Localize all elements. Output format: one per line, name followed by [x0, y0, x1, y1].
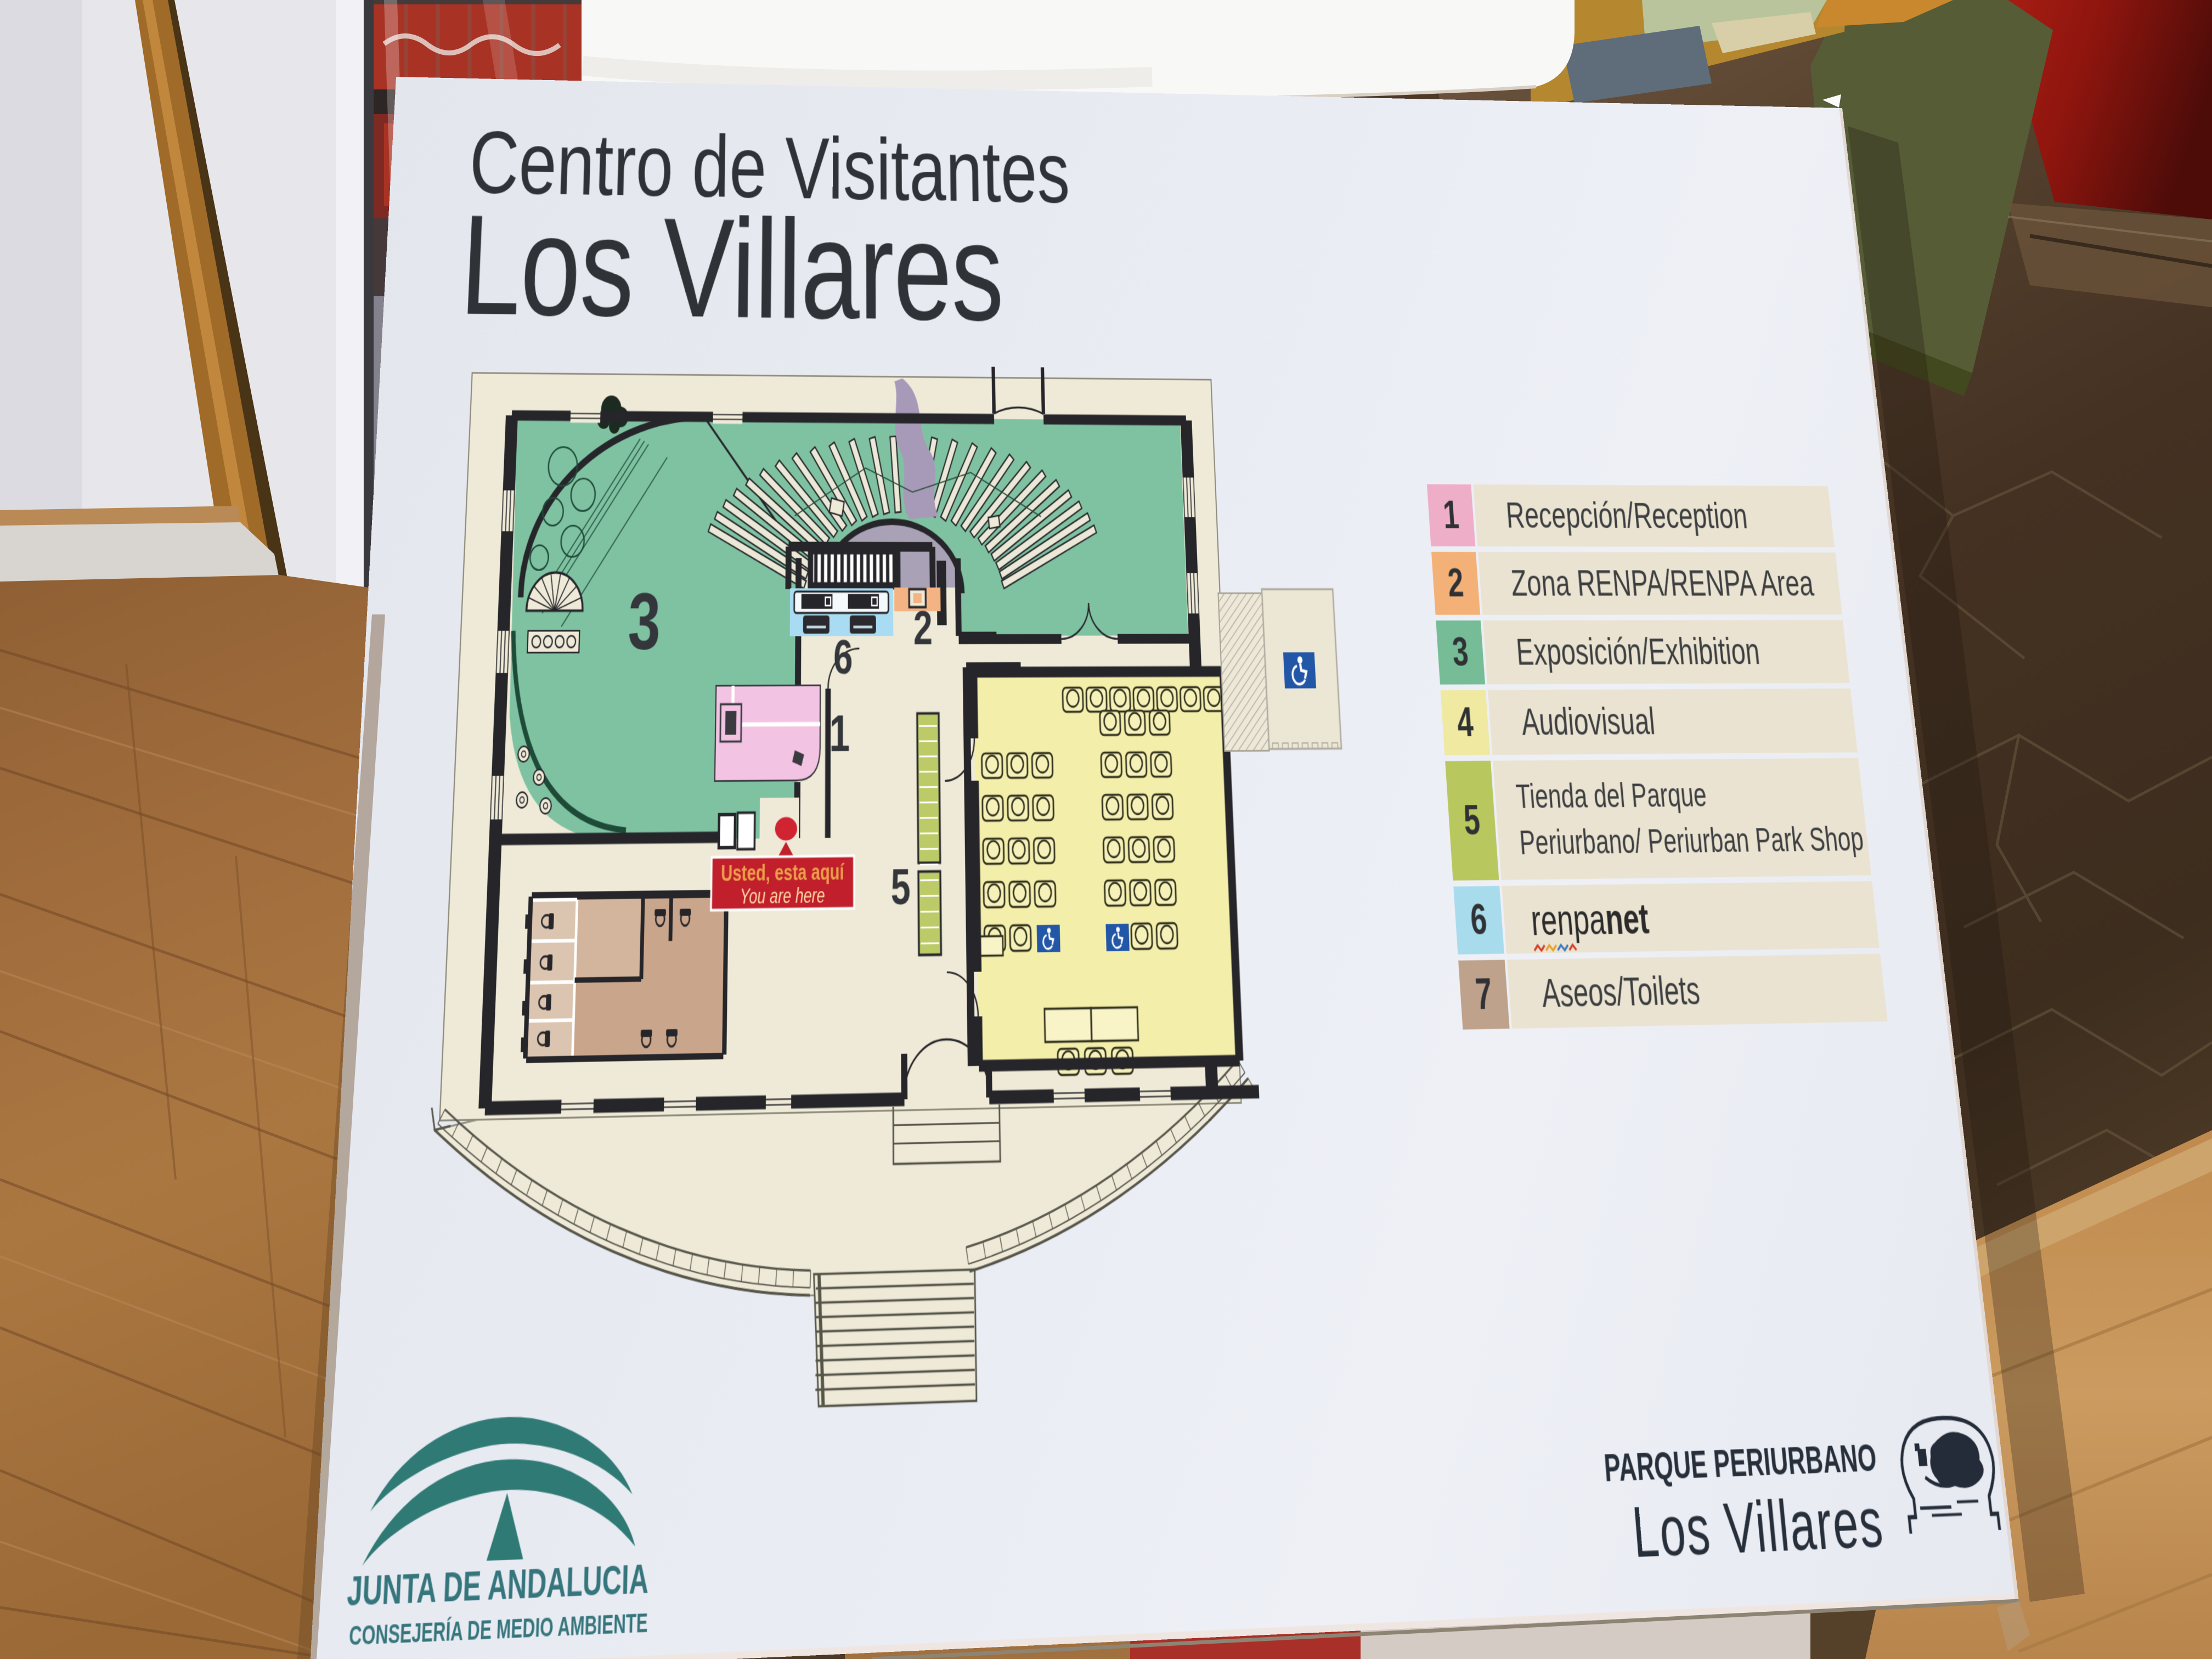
- svg-text:You are here: You are here: [740, 884, 825, 909]
- svg-text:JUNTA DE ANDALUCIA: JUNTA DE ANDALUCIA: [346, 1557, 649, 1615]
- svg-text:5: 5: [891, 859, 911, 916]
- svg-text:Usted, esta aquí: Usted, esta aquí: [721, 859, 845, 886]
- svg-text:CONSEJERÍA DE MEDIO AMBIENTE: CONSEJERÍA DE MEDIO AMBIENTE: [348, 1609, 648, 1651]
- svg-text:1: 1: [829, 704, 850, 763]
- svg-text:6: 6: [833, 631, 853, 685]
- svg-text:3: 3: [627, 577, 662, 667]
- svg-text:2: 2: [913, 602, 933, 655]
